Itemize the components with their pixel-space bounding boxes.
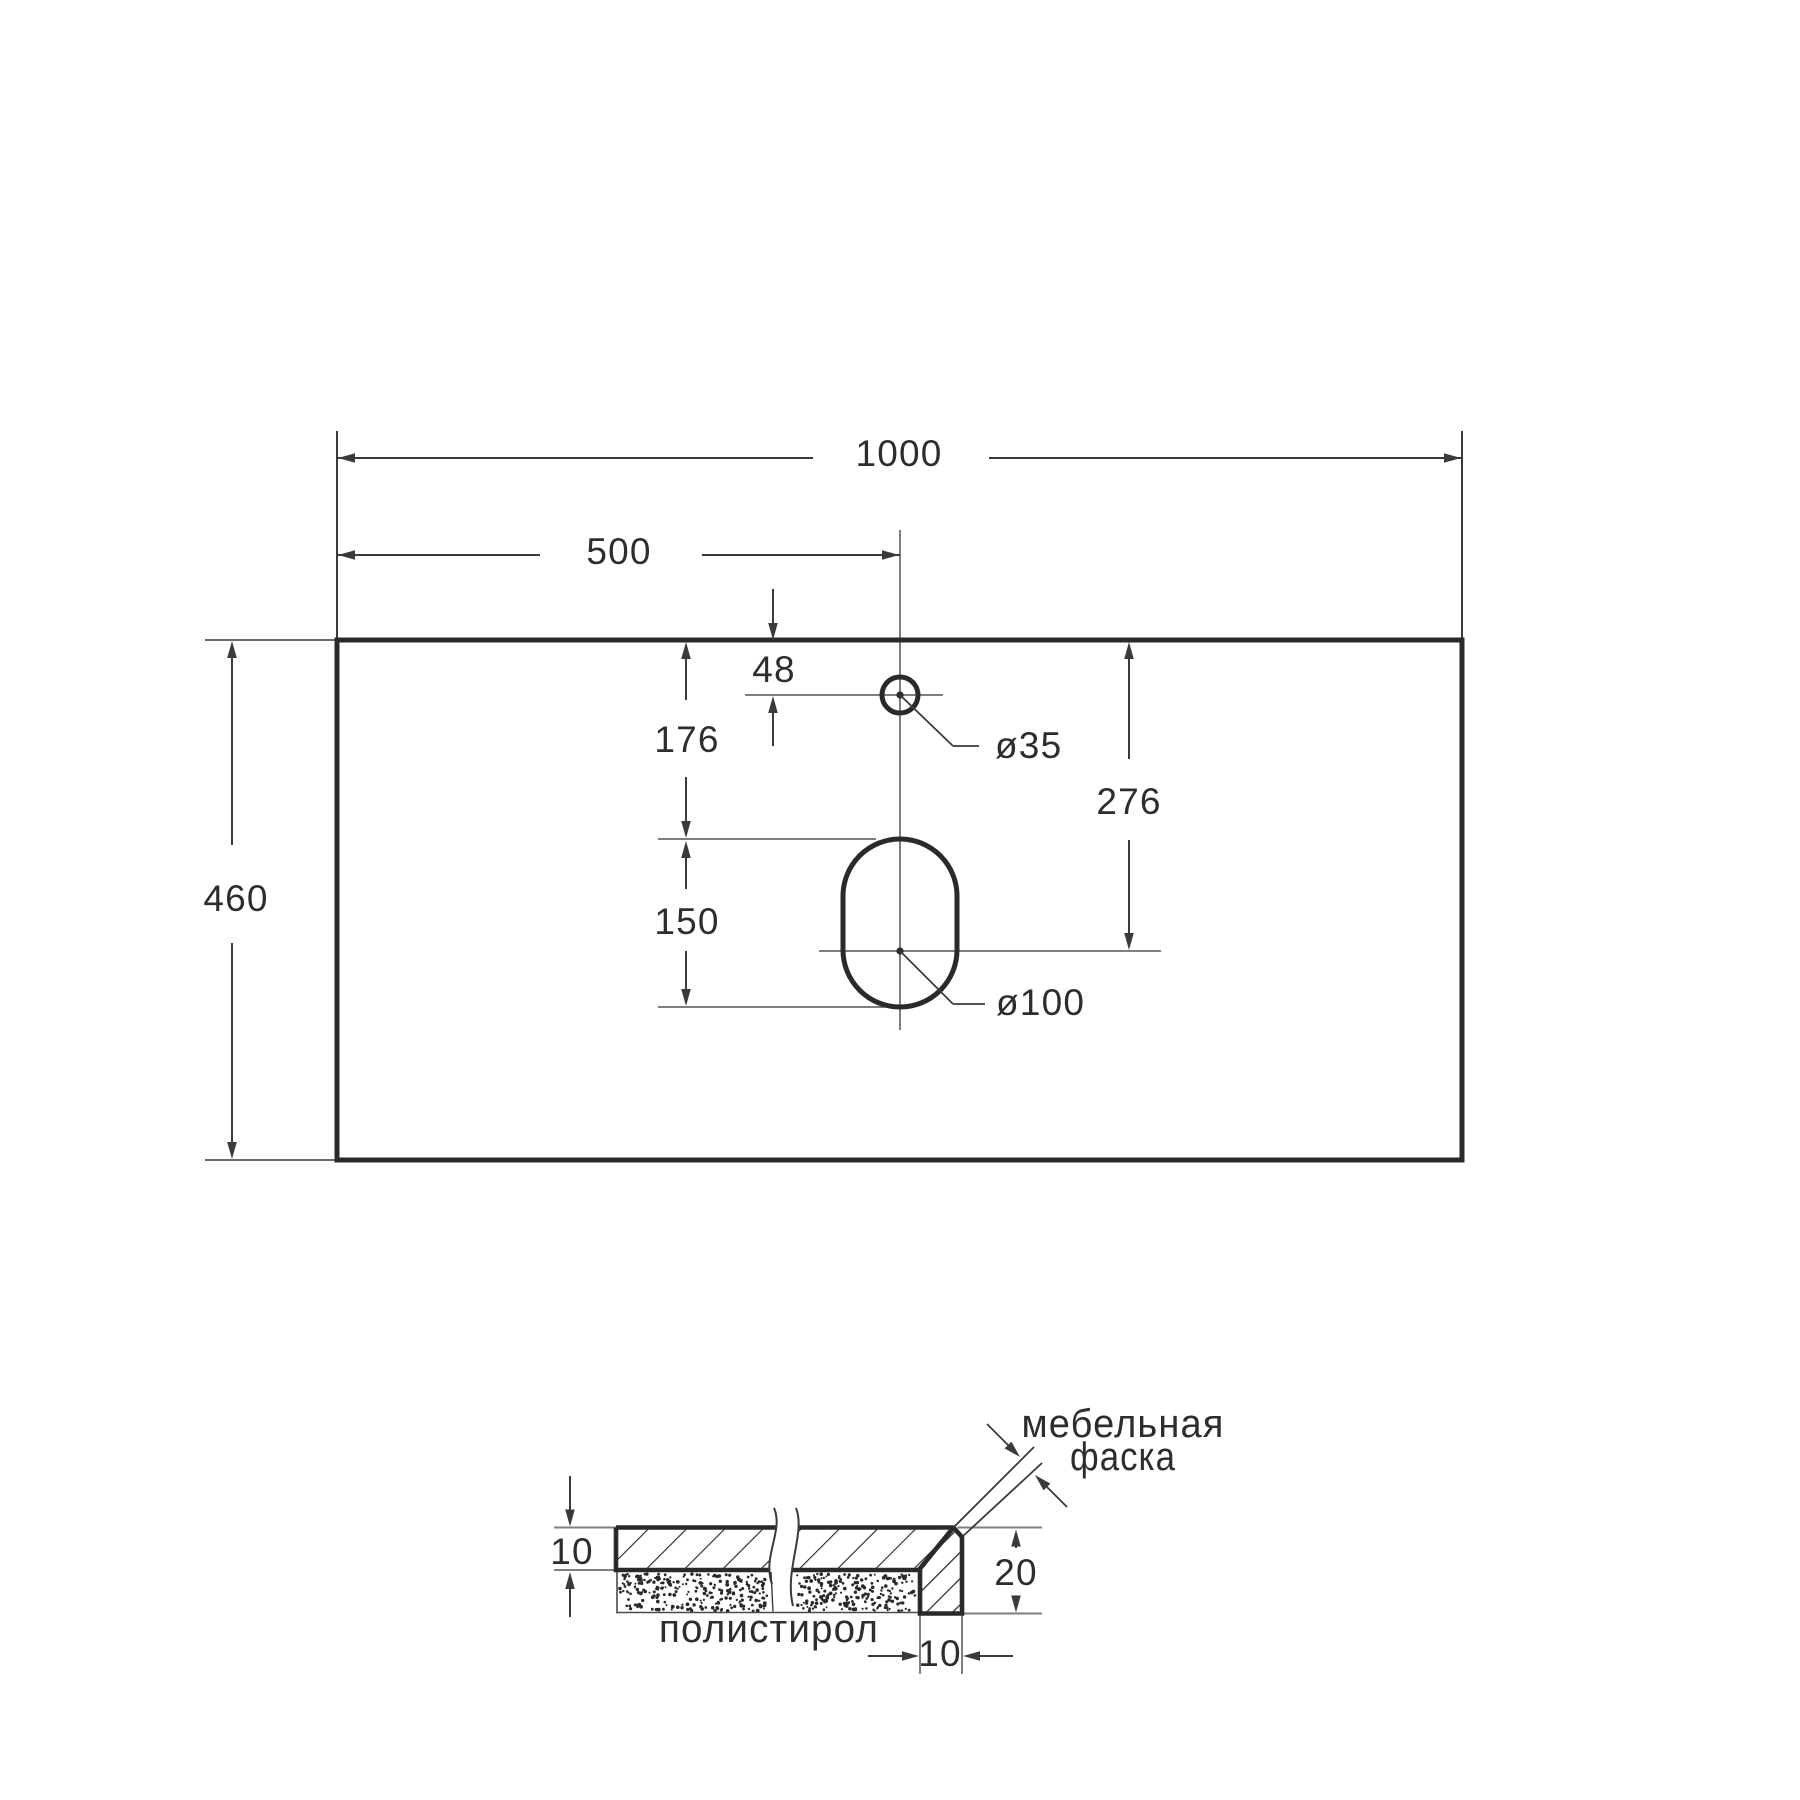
svg-text:460: 460 [203,878,268,919]
svg-text:150: 150 [654,901,719,942]
svg-text:48: 48 [752,649,796,690]
svg-text:20: 20 [994,1552,1038,1593]
svg-text:1000: 1000 [855,433,942,474]
svg-text:10: 10 [918,1633,962,1674]
svg-text:500: 500 [586,531,651,572]
svg-text:ø35: ø35 [995,725,1062,766]
svg-text:ø100: ø100 [996,982,1085,1023]
svg-text:фаска: фаска [1070,1435,1176,1479]
svg-text:276: 276 [1096,781,1161,822]
svg-text:полистирол: полистирол [659,1607,879,1651]
svg-text:10: 10 [550,1531,594,1572]
svg-text:176: 176 [654,719,719,760]
